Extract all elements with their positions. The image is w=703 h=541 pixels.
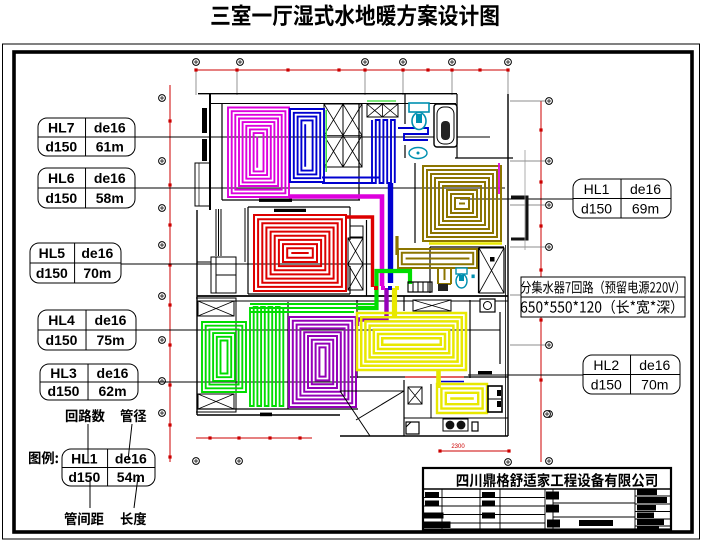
svg-text:d150: d150 <box>581 200 612 216</box>
svg-text:70m: 70m <box>83 265 111 281</box>
svg-text:HL4: HL4 <box>48 312 75 328</box>
svg-text:d150: d150 <box>36 265 68 281</box>
svg-text:HL2: HL2 <box>593 357 619 373</box>
svg-text:de16: de16 <box>95 312 127 328</box>
svg-text:2300: 2300 <box>451 444 465 450</box>
svg-text:HL1: HL1 <box>71 450 98 466</box>
svg-text:de16: de16 <box>81 245 113 261</box>
svg-text:de16: de16 <box>639 357 670 373</box>
svg-text:d150: d150 <box>45 139 77 155</box>
svg-text:d150: d150 <box>46 332 78 348</box>
svg-text:HL6: HL6 <box>48 170 75 186</box>
svg-text:75m: 75m <box>97 332 125 348</box>
svg-text:70m: 70m <box>641 376 668 392</box>
svg-text:d150: d150 <box>48 383 80 399</box>
svg-text:de16: de16 <box>94 170 126 186</box>
svg-text:d150: d150 <box>68 469 100 485</box>
svg-text:61m: 61m <box>96 139 124 155</box>
svg-text:58m: 58m <box>96 190 124 206</box>
svg-text:d150: d150 <box>591 376 622 392</box>
svg-text:HL7: HL7 <box>48 120 75 136</box>
svg-text:d150: d150 <box>45 190 77 206</box>
svg-text:de16: de16 <box>630 181 661 197</box>
svg-text:de16: de16 <box>94 120 126 136</box>
svg-text:HL3: HL3 <box>50 365 77 381</box>
svg-text:de16: de16 <box>97 365 129 381</box>
svg-text:de16: de16 <box>115 450 147 466</box>
svg-text:54m: 54m <box>117 469 145 485</box>
svg-text:62m: 62m <box>99 383 127 399</box>
svg-text:HL1: HL1 <box>584 181 610 197</box>
svg-text:69m: 69m <box>632 200 659 216</box>
svg-text:HL5: HL5 <box>39 245 66 261</box>
